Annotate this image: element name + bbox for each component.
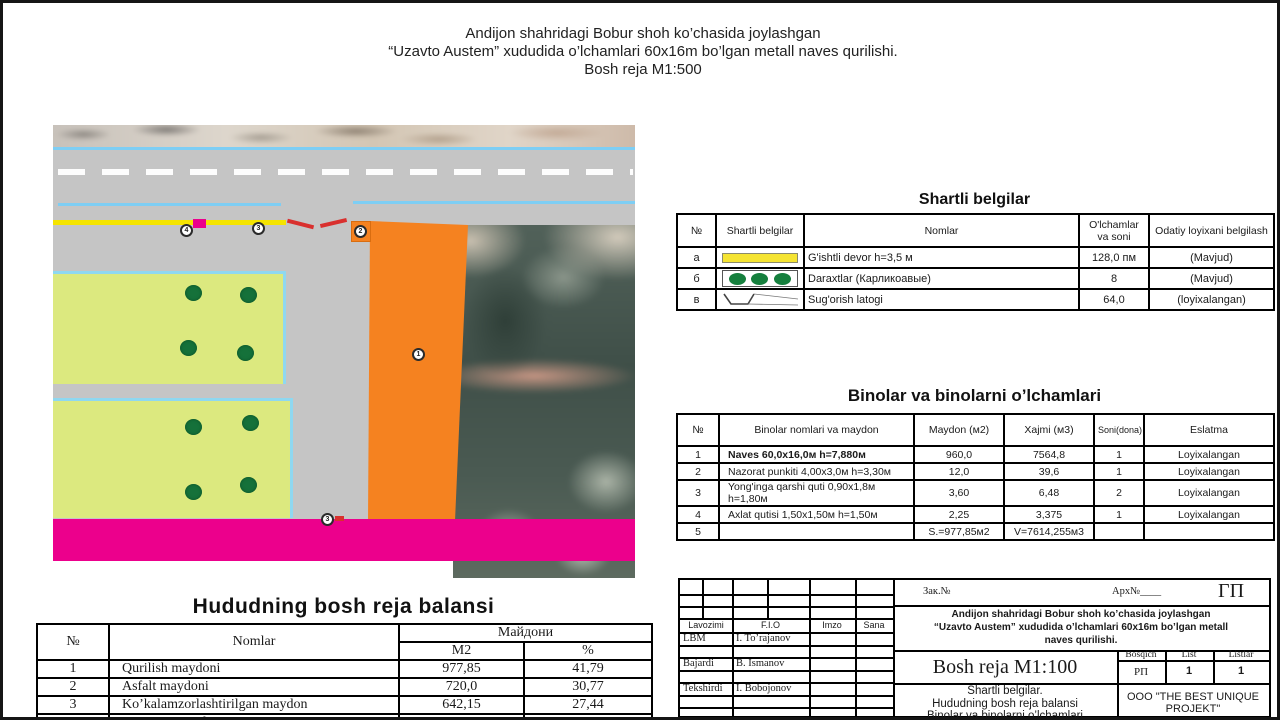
stamp-order-number: Зак.№ (923, 586, 951, 597)
balance-m2: 642,15 (399, 696, 524, 714)
stamp-gp-mark: ГП (1218, 580, 1244, 603)
building-name: Yong'inga qarshi quti 0,90x1,8м h=1,80м (719, 480, 914, 506)
building-note: Loyixalangan (1144, 506, 1274, 523)
buildings-table: № Binolar nomlari va maydon Maydon (м2) … (676, 413, 1275, 541)
stamp-col-lavozimi: Lavozimi (680, 620, 732, 630)
legend-row-size: 8 (1079, 268, 1149, 289)
stamp-sheets-label: Listlar (1213, 650, 1269, 660)
table-row: a G'ishtli devor h=3,5 м 128,0 пм (Mavju… (677, 247, 1274, 268)
building-qty: 2 (1094, 480, 1144, 506)
buildings-header-note: Eslatma (1144, 414, 1274, 446)
table-row: 3 Yong'inga qarshi quti 0,90x1,8м h=1,80… (677, 480, 1274, 506)
legend-header-status: Odatiy loyixani belgilash (1149, 214, 1274, 247)
building-area: 960,0 (914, 446, 1004, 463)
legend-title: Shartli belgilar (676, 191, 1273, 209)
table-row: б Daraxtlar (Карликоавые) 8 (Mavjud) (677, 268, 1274, 289)
stamp-person-name: I. Bobojonov (736, 683, 791, 694)
tree-icon (240, 477, 257, 493)
stamp-sheet-label: List (1165, 650, 1213, 660)
building-name: Axlat qutisi 1,50x1,50м h=1,50м (719, 506, 914, 523)
page-title-line2: “Uzavto Austem” xududida o’lchamlari 60x… (3, 43, 1280, 61)
legend-row-num: б (677, 268, 716, 289)
table-row: 1 Qurilish maydoni 977,85 41,79 (37, 660, 652, 678)
plan-marker-3b: 3 (321, 513, 334, 526)
legend-row-num: в (677, 289, 716, 310)
building-note: Loyixalangan (1144, 463, 1274, 480)
balance-m2: 720,0 (399, 678, 524, 696)
balance-table: № Nomlar Майдони M2 % 1 Qurilish maydoni… (36, 623, 653, 720)
building-num: 1 (677, 446, 719, 463)
balance-name: Ko’kalamzorlashtirilgan maydon (109, 696, 399, 714)
stamp-sheets-value: 1 (1213, 665, 1269, 677)
satellite-photo-top (53, 125, 635, 147)
stamp-company-line2: PROJEKT" (1117, 703, 1269, 715)
building-qty: 1 (1094, 506, 1144, 523)
title-block: Lavozimi F.I.O Imzo Sana LBM I. To’rajan… (678, 578, 1271, 718)
table-header-row: № Nomlar Майдони (37, 624, 652, 642)
building-num: 5 (677, 523, 719, 540)
naves-building (365, 221, 471, 521)
green-area-2 (53, 398, 293, 518)
buildings-header-num: № (677, 414, 719, 446)
balance-m2: 2340,0 (399, 714, 524, 720)
stamp-content-line1: Shartli belgilar. (893, 685, 1117, 698)
stamp-person-name: I. To’rajanov (736, 633, 790, 644)
stamp-stage-value: РП (1117, 666, 1165, 678)
balance-title: Hududning bosh reja balansi (36, 595, 651, 619)
stamp-drawing-title: Bosh reja M1:100 (893, 656, 1117, 679)
plan-marker-4: 4 (180, 224, 193, 237)
stamp-col-sana: Sana (855, 620, 893, 630)
balance-header-m2: M2 (399, 642, 524, 660)
table-row: 3 Ko’kalamzorlashtirilgan maydon 642,15 … (37, 696, 652, 714)
page-title-line1: Andijon shahridagi Bobur shoh ko’chasida… (3, 25, 1280, 43)
legend-row-size: 128,0 пм (1079, 247, 1149, 268)
legend-row-status: (Mavjud) (1149, 247, 1274, 268)
plan-marker-3a: 3 (252, 222, 265, 235)
stamp-sheet-value: 1 (1165, 665, 1213, 677)
legend-row-num: a (677, 247, 716, 268)
building-note: Loyixalangan (1144, 480, 1274, 506)
stamp-role: Bajardi (683, 658, 714, 669)
building-name: Nazorat punkiti 4,00x3,0м h=3,30м (719, 463, 914, 480)
tree-icon (185, 484, 202, 500)
legend-header-num: № (677, 214, 716, 247)
balance-pct: 100 (524, 714, 652, 720)
stamp-company: OOO "THE BEST UNIQUE PROJEKT" (1117, 691, 1269, 715)
building-qty: 1 (1094, 463, 1144, 480)
stamp-company-line1: OOO "THE BEST UNIQUE (1117, 691, 1269, 703)
buildings-header-volume: Xajmi (м3) (1004, 414, 1094, 446)
trash-bin-symbol (193, 219, 206, 228)
building-qty (1094, 523, 1144, 540)
buildings-header-name: Binolar nomlari va maydon (719, 414, 914, 446)
table-row: 4 Umumiy maydon 2340,0 100 (37, 714, 652, 720)
table-row: 4 Axlat qutisi 1,50x1,50м h=1,50м 2,25 3… (677, 506, 1274, 523)
stamp-role: Tekshirdi (683, 683, 723, 694)
balance-header-pct: % (524, 642, 652, 660)
building-note: Loyixalangan (1144, 446, 1274, 463)
buildings-header-area: Maydon (м2) (914, 414, 1004, 446)
building-num: 2 (677, 463, 719, 480)
balance-header-num: № (37, 624, 109, 660)
stamp-project-description: Andijon shahridagi Bobur shoh ko’chasida… (893, 608, 1269, 647)
drawing-sheet: Andijon shahridagi Bobur shoh ko’chasida… (0, 0, 1280, 720)
balance-m2: 977,85 (399, 660, 524, 678)
plan-marker-1: 1 (412, 348, 425, 361)
building-volume: 3,375 (1004, 506, 1094, 523)
building-volume: 39,6 (1004, 463, 1094, 480)
legend-header-size: O'lchamlar va soni (1079, 214, 1149, 247)
balance-pct: 41,79 (524, 660, 652, 678)
tree-icon (185, 285, 202, 301)
stamp-col-imzo: Imzo (809, 620, 855, 630)
stamp-project-line1: Andijon shahridagi Bobur shoh ko’chasida… (893, 608, 1269, 621)
table-row: в Sug'orish latogi 64,0 (loyixalangan) (677, 289, 1274, 310)
stamp-project-line3: naves qurilishi. (893, 634, 1269, 647)
table-row: 2 Asfalt maydoni 720,0 30,77 (37, 678, 652, 696)
building-qty: 1 (1094, 446, 1144, 463)
buildings-title: Binolar va binolarni o’lchamlari (676, 386, 1273, 406)
balance-header-area-group: Майдони (399, 624, 652, 642)
building-name: Naves 60,0x16,0м h=7,880м (719, 446, 914, 463)
stamp-sheet-contents: Shartli belgilar. Hududning bosh reja ba… (893, 685, 1117, 720)
stamp-col-fio: F.I.O (732, 620, 809, 630)
balance-pct: 27,44 (524, 696, 652, 714)
legend-header-name: Nomlar (804, 214, 1079, 247)
table-row: 5 S.=977,85м2 V=7614,255м3 (677, 523, 1274, 540)
building-num: 3 (677, 480, 719, 506)
building-num: 4 (677, 506, 719, 523)
road-centerline (58, 169, 633, 175)
table-row: 2 Nazorat punkiti 4,00x3,0м h=3,30м 12,0… (677, 463, 1274, 480)
balance-num: 1 (37, 660, 109, 678)
building-volume: V=7614,255м3 (1004, 523, 1094, 540)
balance-name: Qurilish maydoni (109, 660, 399, 678)
legend-row-size: 64,0 (1079, 289, 1149, 310)
building-name (719, 523, 914, 540)
building-area: 12,0 (914, 463, 1004, 480)
page-title: Andijon shahridagi Bobur shoh ko’chasida… (3, 25, 1280, 79)
stamp-project-line2: “Uzavto Austem” xududida o’lchamlari 60x… (893, 621, 1269, 634)
table-header-row: № Shartli belgilar Nomlar O'lchamlar va … (677, 214, 1274, 247)
balance-num: 4 (37, 714, 109, 720)
building-area: 2,25 (914, 506, 1004, 523)
building-note (1144, 523, 1274, 540)
legend-table: № Shartli belgilar Nomlar O'lchamlar va … (676, 213, 1275, 311)
legend-row-status: (Mavjud) (1149, 268, 1274, 289)
page-title-line3: Bosh reja M1:500 (3, 61, 1280, 79)
tree-icon (180, 340, 197, 356)
legend-row-name: Daraxtlar (Карликоавые) (804, 268, 1079, 289)
stamp-role: LBM (683, 633, 706, 644)
stamp-stage-label: Bosqich (1117, 650, 1165, 660)
building-area: 3,60 (914, 480, 1004, 506)
legend-row-name: Sug'orish latogi (804, 289, 1079, 310)
balance-num: 2 (37, 678, 109, 696)
site-boundary-strip (53, 519, 635, 561)
yellow-wall-symbol (716, 247, 804, 268)
buildings-header-qty: Soni(dona) (1094, 414, 1144, 446)
dwarf-trees-symbol (716, 268, 804, 289)
table-header-row: № Binolar nomlari va maydon Maydon (м2) … (677, 414, 1274, 446)
stamp-archive-number: Арх№____ (1112, 586, 1161, 597)
irrigation-tray-symbol (716, 289, 804, 310)
tree-icon (185, 419, 202, 435)
brick-wall-line (53, 220, 286, 225)
building-volume: 6,48 (1004, 480, 1094, 506)
legend-header-symbol: Shartli belgilar (716, 214, 804, 247)
road-curb-bottom-right (353, 201, 635, 204)
building-area: S.=977,85м2 (914, 523, 1004, 540)
balance-num: 3 (37, 696, 109, 714)
plan-marker-2: 2 (354, 225, 367, 238)
building-volume: 7564,8 (1004, 446, 1094, 463)
legend-row-name: G'ishtli devor h=3,5 м (804, 247, 1079, 268)
legend-row-status: (loyixalangan) (1149, 289, 1274, 310)
balance-header-name: Nomlar (109, 624, 399, 660)
fire-box-symbol (335, 516, 344, 521)
tree-icon (242, 415, 259, 431)
stamp-content-line2: Hududning bosh reja balansi (893, 698, 1117, 711)
balance-name: Umumiy maydon (109, 714, 399, 720)
balance-name: Asfalt maydoni (109, 678, 399, 696)
tree-icon (237, 345, 254, 361)
balance-pct: 30,77 (524, 678, 652, 696)
road-curb-bottom-left (58, 203, 281, 206)
stamp-person-name: B. Ismanov (736, 658, 784, 669)
stamp-content-line3: Binolar va binolarni o’lchamlari (893, 710, 1117, 720)
site-plan: 4 3 2 1 3 (53, 125, 635, 578)
tree-icon (240, 287, 257, 303)
table-row: 1 Naves 60,0x16,0м h=7,880м 960,0 7564,8… (677, 446, 1274, 463)
